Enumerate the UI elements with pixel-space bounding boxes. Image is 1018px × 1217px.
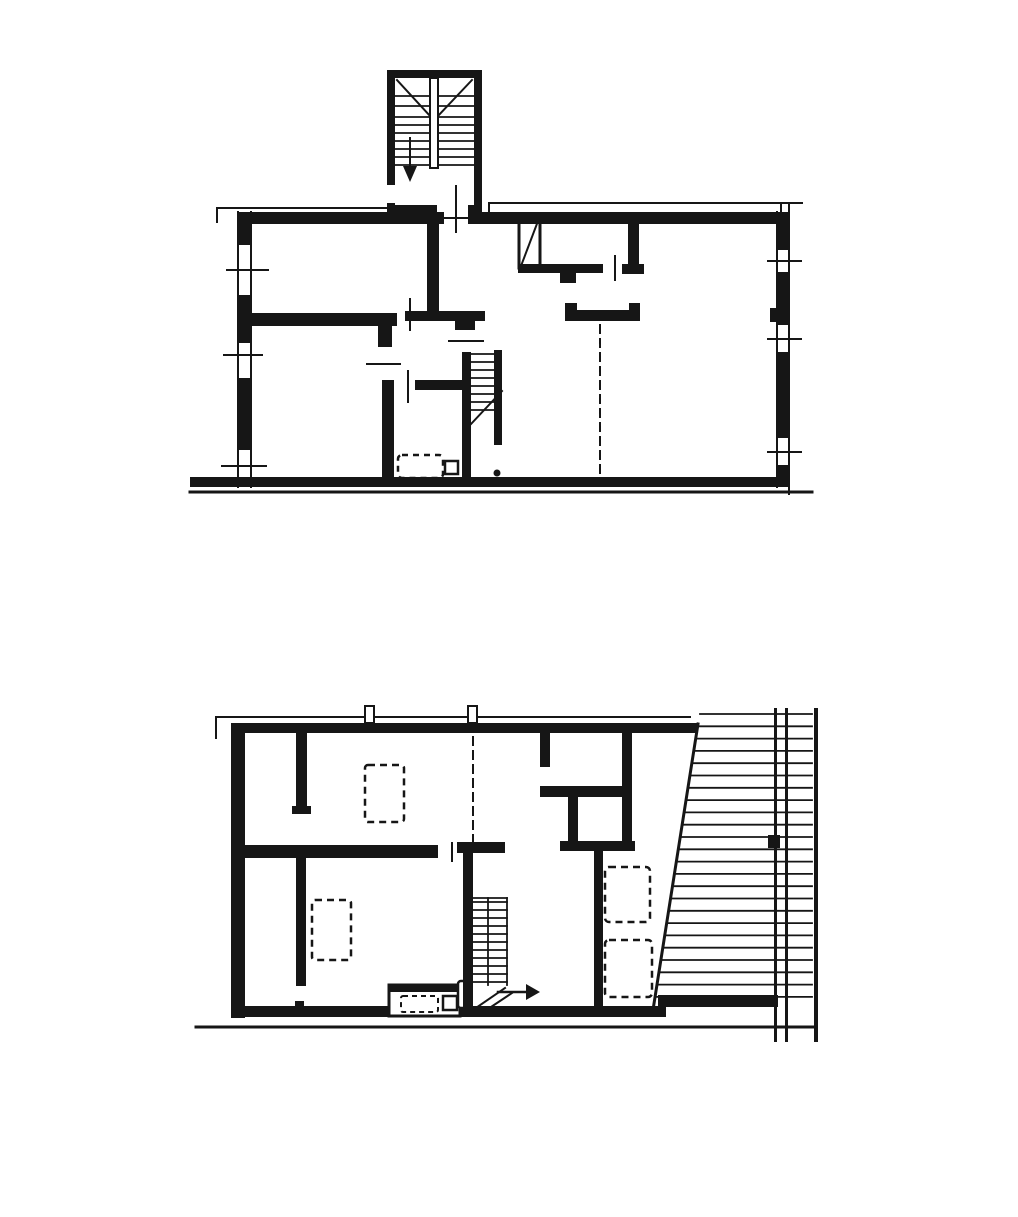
stair-treads	[473, 898, 507, 985]
lower-floor-plan	[196, 706, 818, 1042]
stair-wall	[463, 845, 473, 1015]
landing-door-mark	[440, 186, 470, 232]
terrace-edge-post	[768, 835, 780, 848]
stair-down-arrow-head	[403, 166, 417, 182]
pillar-dashed-top-room	[365, 765, 404, 822]
exterior-bottom-wall	[190, 477, 790, 487]
shaft-dashed-upper	[605, 867, 650, 922]
sink-fixture	[443, 996, 457, 1010]
shaft-dashed-lower	[605, 940, 652, 997]
left-room-partition-wall	[250, 313, 397, 347]
wc-fixture	[445, 461, 458, 474]
small-room-walls	[518, 224, 644, 283]
small-room-door-leaf	[521, 221, 538, 266]
bathtub	[398, 455, 443, 478]
right-wall-pier	[770, 308, 780, 322]
left-window-wall-solid	[237, 212, 252, 450]
wall-above-stubs	[365, 706, 477, 723]
floor-plan-document	[0, 0, 1018, 1217]
terrace-diagonal-edge	[653, 724, 698, 1010]
door-hinge-dot	[494, 470, 501, 477]
stair-tower-newel-wall	[430, 78, 438, 168]
left-room-partition-lower	[295, 858, 306, 1008]
inner-stair-treads	[471, 354, 494, 410]
upper-floor-plan	[190, 70, 812, 494]
central-spine-wall	[405, 224, 485, 330]
right-window-wall-solid	[776, 212, 790, 487]
right-room-walls	[540, 733, 635, 1007]
console-wall	[565, 303, 640, 321]
left-room-partition-upper	[292, 733, 311, 814]
terrace-edge-double-line	[774, 708, 788, 1042]
kitchen-counter-top-edge	[389, 985, 460, 992]
terrace-outer-line	[814, 708, 818, 1042]
stair-up-arrow-head	[526, 984, 540, 1000]
floor-plan-drawing	[0, 0, 1018, 1217]
pillar-dashed-bottom-room	[312, 900, 351, 960]
exterior-top-wall	[238, 212, 790, 224]
window-sill-ticks	[222, 261, 801, 466]
